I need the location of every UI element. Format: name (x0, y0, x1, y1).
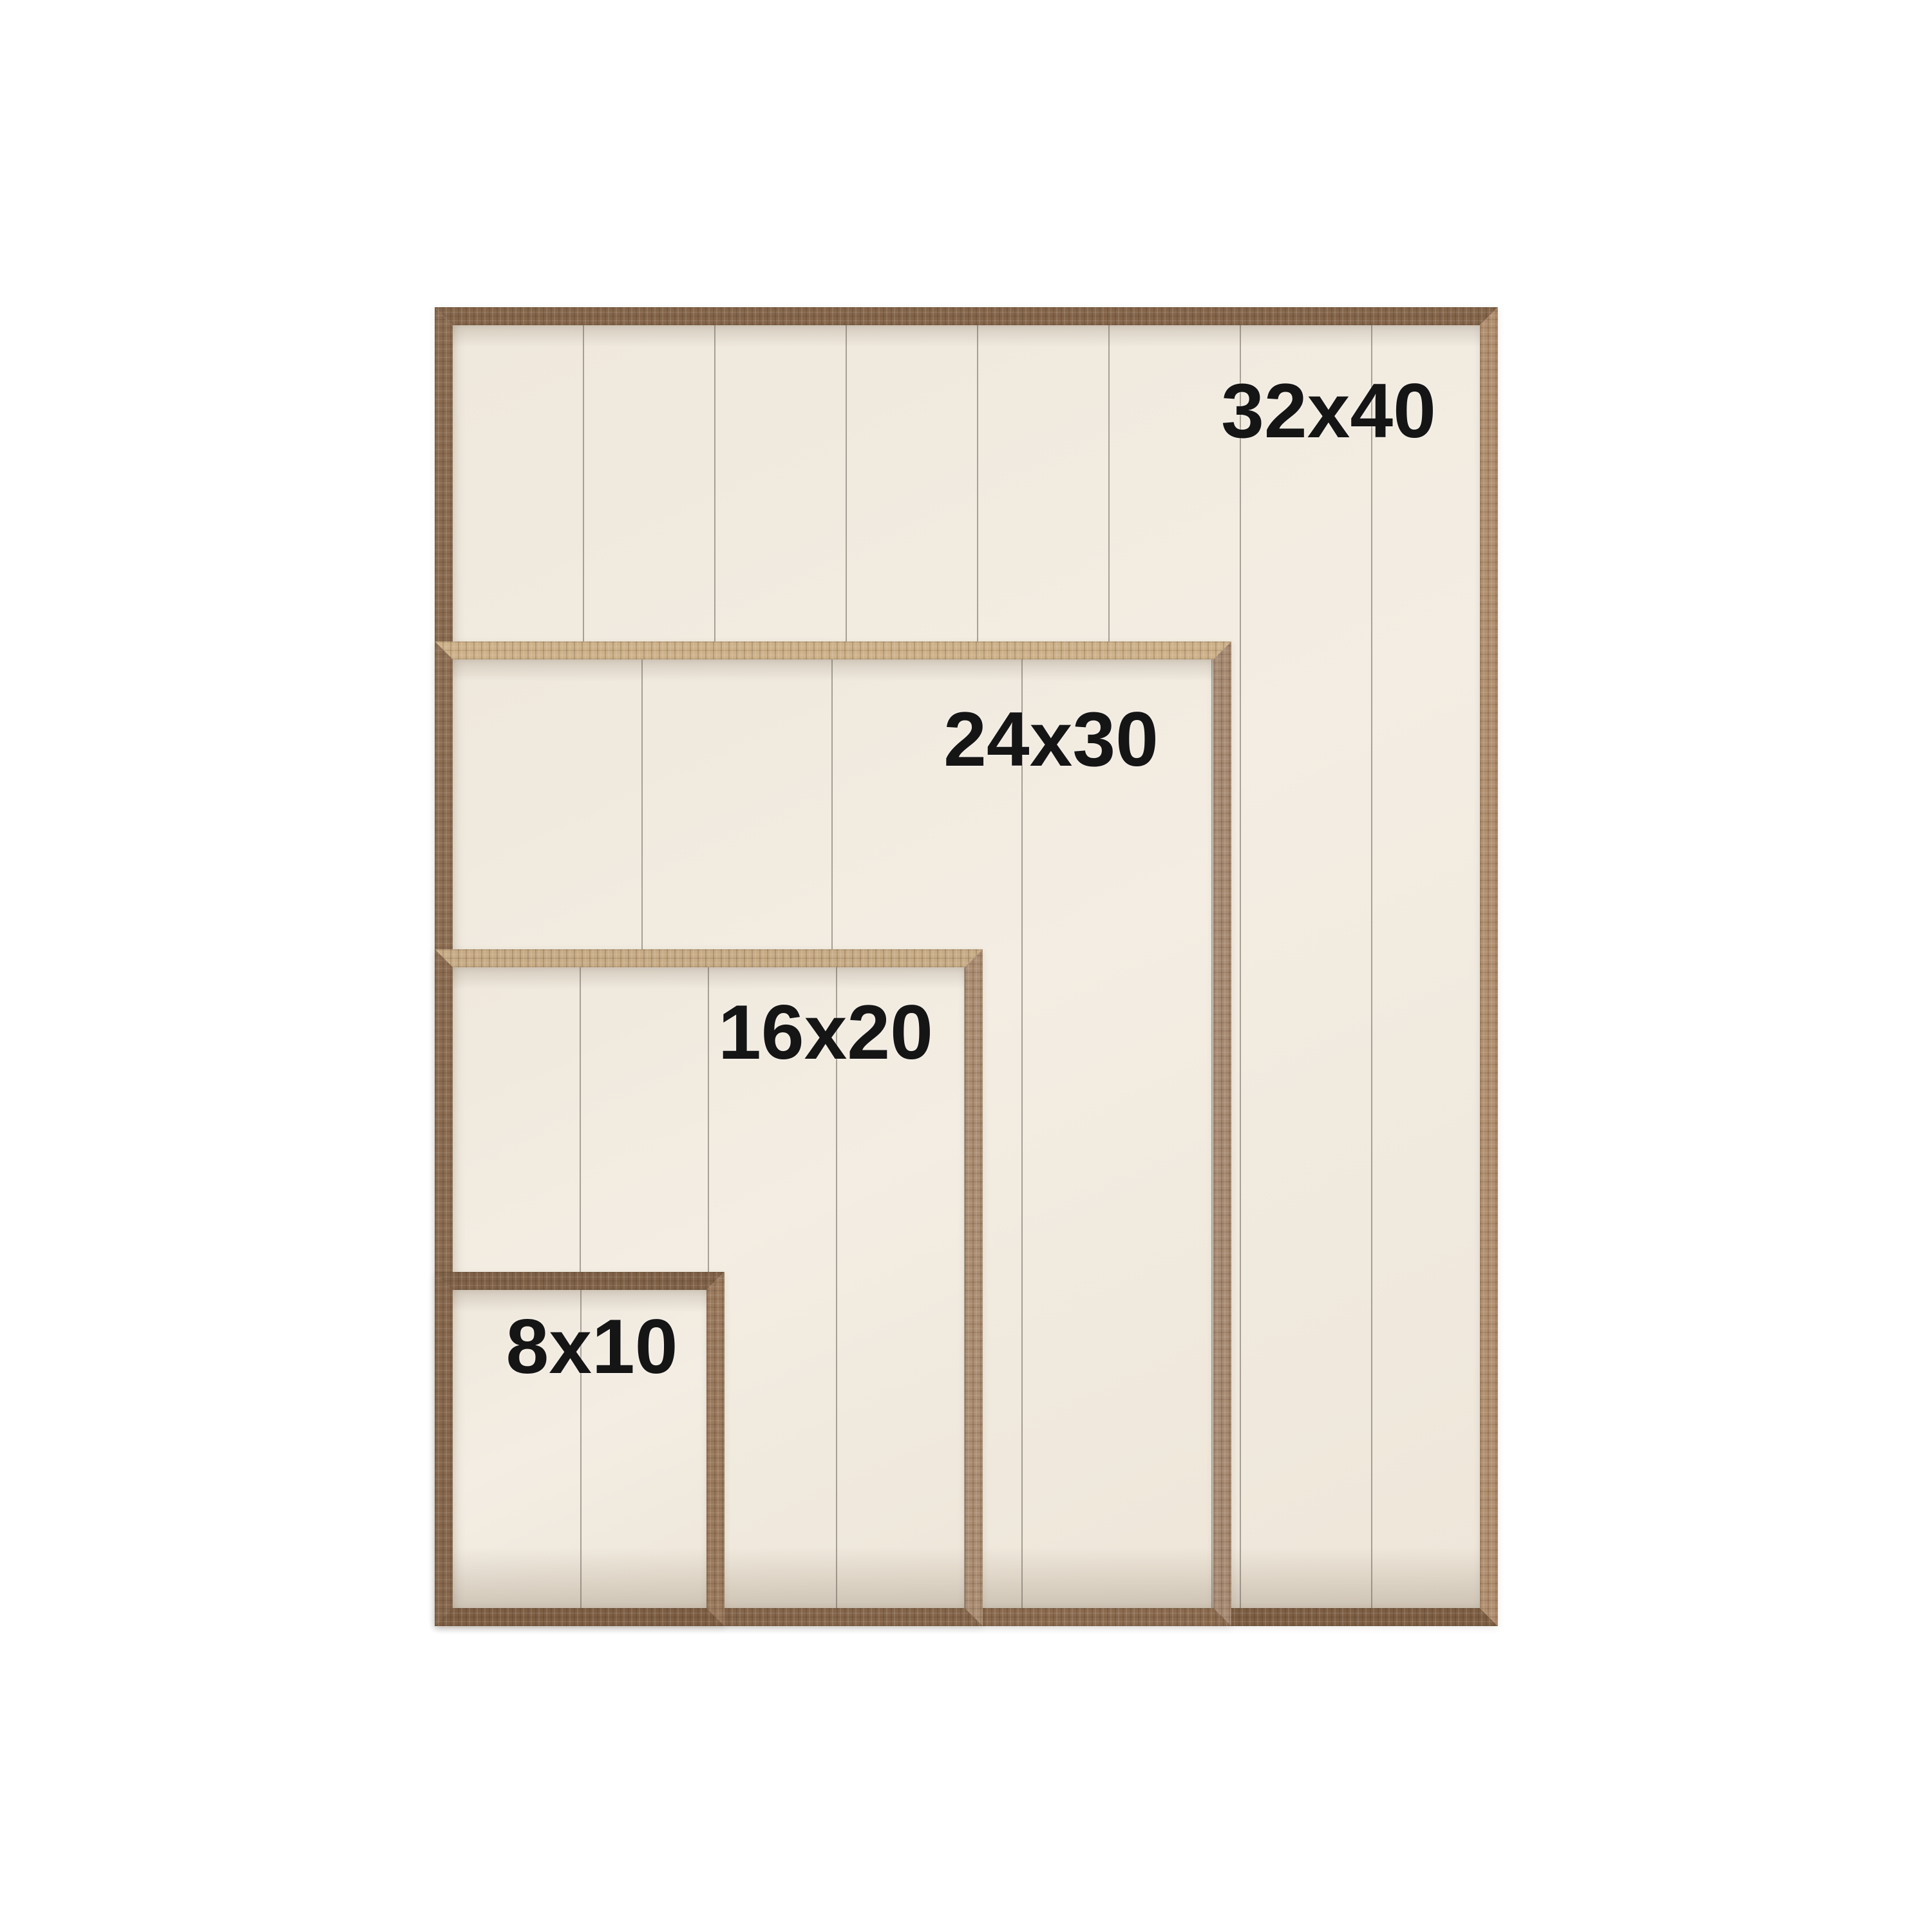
wood-rail-top (435, 307, 1498, 325)
size-label-8x10: 8x10 (506, 1308, 678, 1385)
wood-rail-left (435, 1272, 453, 1626)
frame-size-comparison-image: 32x40 24x30 16x20 8x10 (0, 0, 1932, 1932)
size-label-16x20: 16x20 (718, 994, 933, 1071)
size-label-32x40: 32x40 (1221, 372, 1436, 450)
wood-rail-top (435, 1272, 724, 1290)
wood-rail-right (706, 1272, 724, 1626)
wood-rail-right (1213, 641, 1231, 1626)
wood-rail-top (435, 949, 983, 967)
wood-rail-right (1480, 307, 1498, 1626)
wood-rail-right (965, 949, 983, 1626)
wood-rail-bottom (435, 1608, 724, 1626)
size-label-24x30: 24x30 (943, 701, 1159, 778)
frame-8x10: 8x10 (435, 1272, 724, 1626)
wood-rail-top (435, 641, 1231, 659)
